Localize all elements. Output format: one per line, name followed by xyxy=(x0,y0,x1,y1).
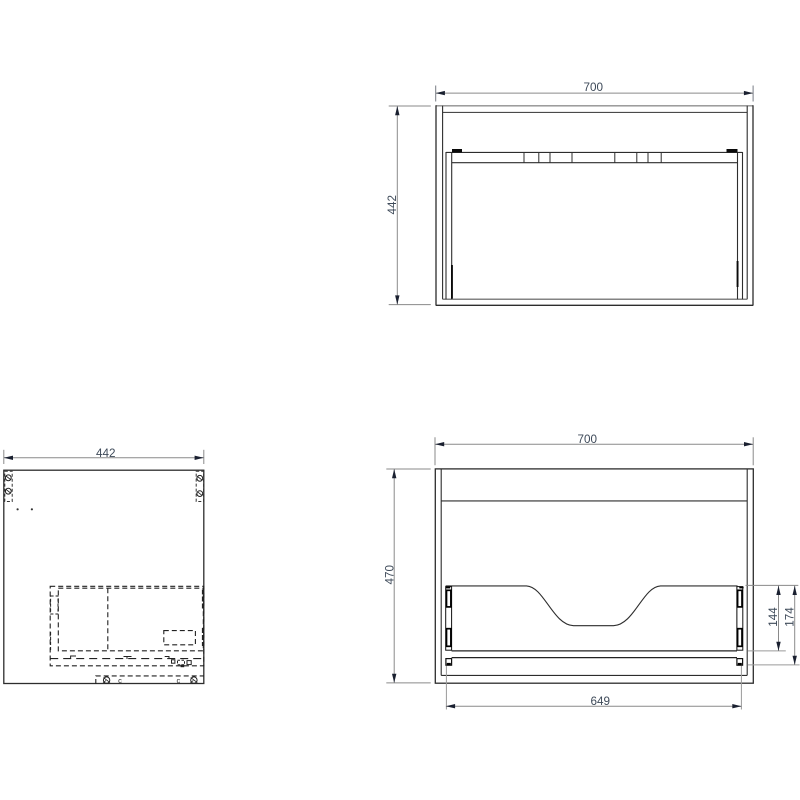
svg-text:144: 144 xyxy=(767,607,780,627)
svg-text:442: 442 xyxy=(386,195,399,215)
svg-text:c: c xyxy=(118,676,122,685)
svg-text:174: 174 xyxy=(784,607,797,627)
svg-text:470: 470 xyxy=(383,564,396,584)
svg-text:442: 442 xyxy=(96,447,116,460)
svg-text:c: c xyxy=(177,676,181,685)
svg-text:700: 700 xyxy=(584,81,604,94)
svg-text:700: 700 xyxy=(577,433,597,446)
svg-text:649: 649 xyxy=(591,695,611,708)
